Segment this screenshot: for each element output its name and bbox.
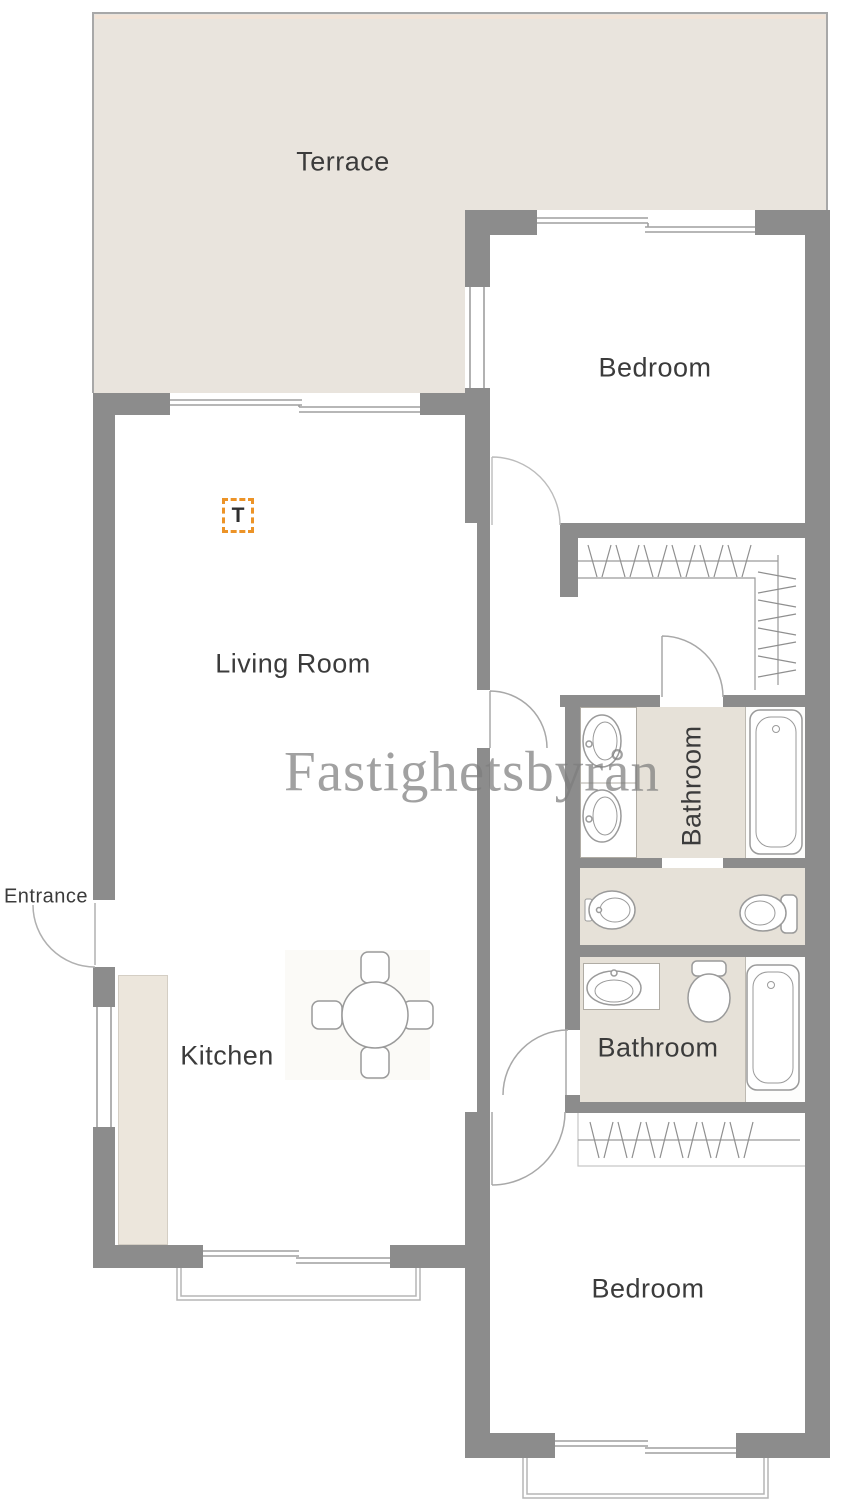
room-label-terrace: Terrace [296,147,390,178]
room-label-entrance: Entrance [4,886,88,909]
floor-plan: Terrace Bedroom Living Room Bathroom Ent… [0,0,843,1504]
room-label-kitchen: Kitchen [180,1041,274,1072]
room-label-living-room: Living Room [215,649,371,680]
watermark: Fastighetsbyrån [284,740,660,805]
room-label-bedroom-bottom: Bedroom [591,1274,704,1305]
tv-outlet-letter: T [232,504,245,528]
room-label-bedroom-top: Bedroom [598,353,711,384]
room-label-bathroom-bottom: Bathroom [597,1033,718,1064]
room-label-bathroom-top: Bathroom [677,725,708,846]
tv-outlet-marker: T [222,498,254,533]
